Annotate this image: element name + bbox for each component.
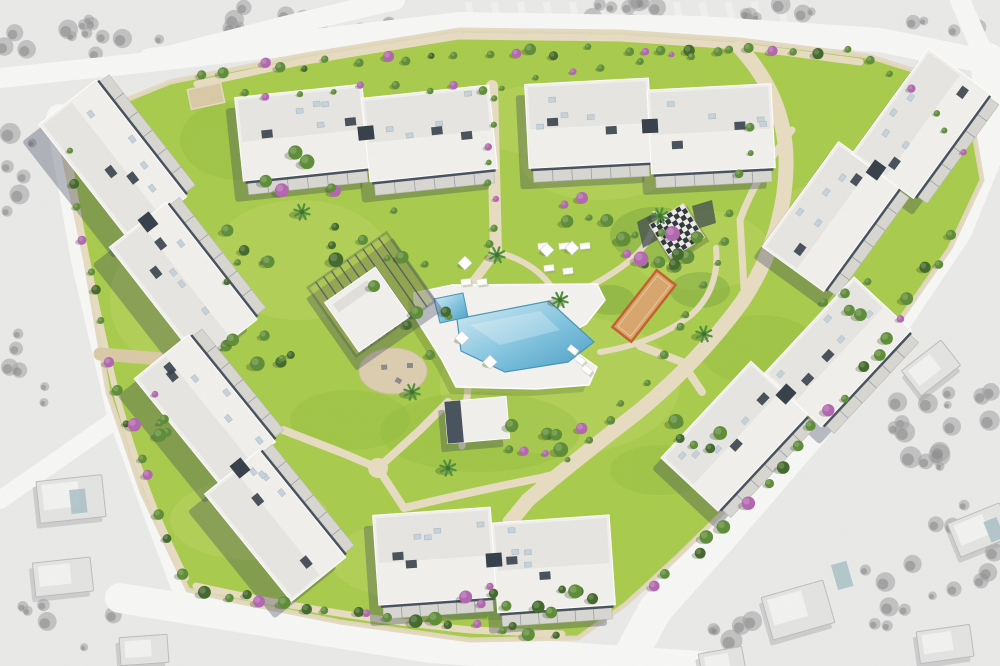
site-plan-rendering (0, 0, 1000, 666)
photo-grain-overlay (0, 0, 1000, 666)
masterplan-figure (0, 0, 1000, 666)
